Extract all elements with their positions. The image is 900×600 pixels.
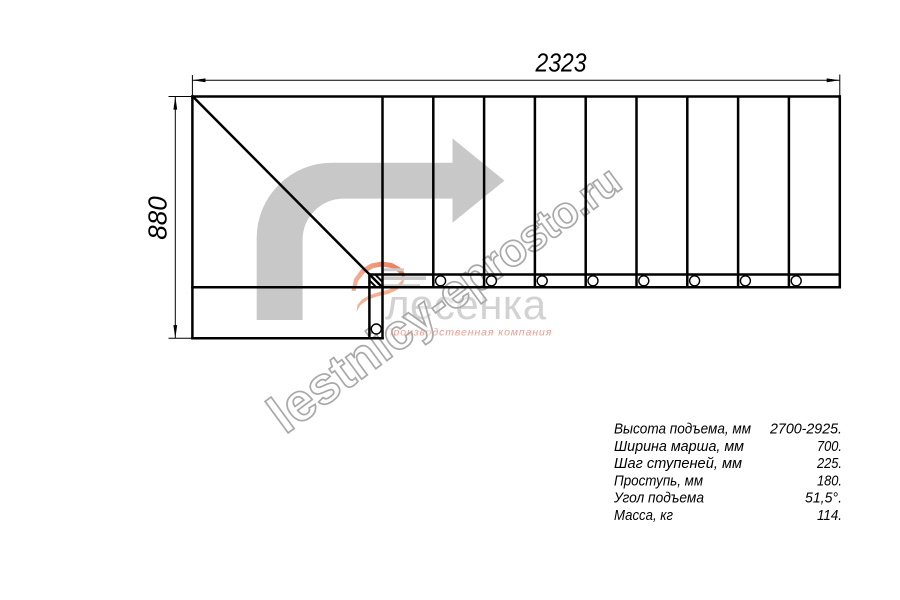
svg-text:51,5°.: 51,5°. [805, 490, 842, 507]
svg-text:700.: 700. [817, 438, 842, 455]
svg-text:180.: 180. [817, 472, 842, 489]
svg-text:880: 880 [143, 196, 173, 240]
svg-text:Угол подъема: Угол подъема [613, 490, 704, 507]
svg-text:Ширина марша, мм: Ширина марша, мм [614, 438, 744, 455]
svg-text:114.: 114. [817, 507, 842, 524]
svg-text:Высота подъема, мм: Высота подъема, мм [614, 421, 751, 438]
svg-text:225.: 225. [816, 455, 842, 472]
svg-text:Масса, кг: Масса, кг [614, 507, 674, 524]
svg-text:2700-2925.: 2700-2925. [769, 421, 842, 438]
svg-text:2323: 2323 [535, 48, 587, 78]
svg-text:Проступь, мм: Проступь, мм [614, 472, 703, 489]
svg-text:Шаг ступеней, мм: Шаг ступеней, мм [614, 455, 742, 472]
